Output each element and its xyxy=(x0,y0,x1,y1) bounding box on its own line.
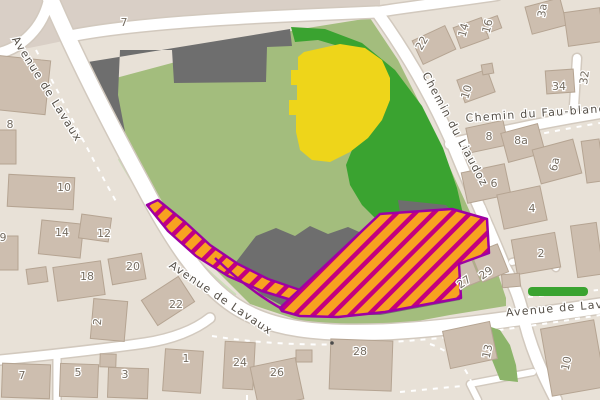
house-number-10: 7 xyxy=(19,369,26,382)
building-27[interactable] xyxy=(481,63,494,75)
house-number-9: 2 xyxy=(91,318,105,326)
house-number-8: 22 xyxy=(169,298,183,311)
house-number-5: 9 xyxy=(0,231,7,244)
house-number-11: 5 xyxy=(75,366,82,379)
house-number-24: 8 xyxy=(486,130,493,143)
house-number-25: 8a xyxy=(514,134,528,147)
house-number-27: 6 xyxy=(491,177,498,190)
green-strip-roadside xyxy=(528,287,588,296)
house-number-20: 3a xyxy=(535,3,550,18)
house-number-1: 7 xyxy=(121,16,128,29)
house-number-15: 26 xyxy=(270,366,284,379)
house-number-3: 14 xyxy=(55,226,69,239)
house-number-7: 20 xyxy=(126,260,140,273)
house-number-13: 1 xyxy=(183,352,190,365)
house-number-0: 8 xyxy=(7,118,14,131)
map-canvas[interactable]: Avenue de LavauxAvenue de LavauxAvenue d… xyxy=(0,0,600,400)
building-1[interactable] xyxy=(0,130,16,164)
map-dot xyxy=(330,341,334,345)
building-6[interactable] xyxy=(53,261,105,301)
house-number-14: 24 xyxy=(233,356,247,369)
house-number-4: 12 xyxy=(97,227,111,240)
map-view: Avenue de LavauxAvenue de LavauxAvenue d… xyxy=(0,0,600,400)
building-33[interactable] xyxy=(511,232,560,274)
house-number-12: 3 xyxy=(122,368,129,381)
house-number-23: 32 xyxy=(577,70,592,86)
house-number-6: 18 xyxy=(80,270,94,283)
building-24[interactable] xyxy=(564,8,600,47)
building-37[interactable] xyxy=(501,273,520,288)
building-14[interactable] xyxy=(100,354,116,368)
building-11[interactable] xyxy=(1,363,50,399)
building-19[interactable] xyxy=(296,350,312,362)
house-number-16: 28 xyxy=(353,345,367,358)
house-number-22: 34 xyxy=(552,80,566,93)
house-number-29: 2 xyxy=(538,247,545,260)
house-number-2: 10 xyxy=(57,181,71,194)
building-7[interactable] xyxy=(26,267,48,285)
house-number-28: 4 xyxy=(529,202,536,215)
